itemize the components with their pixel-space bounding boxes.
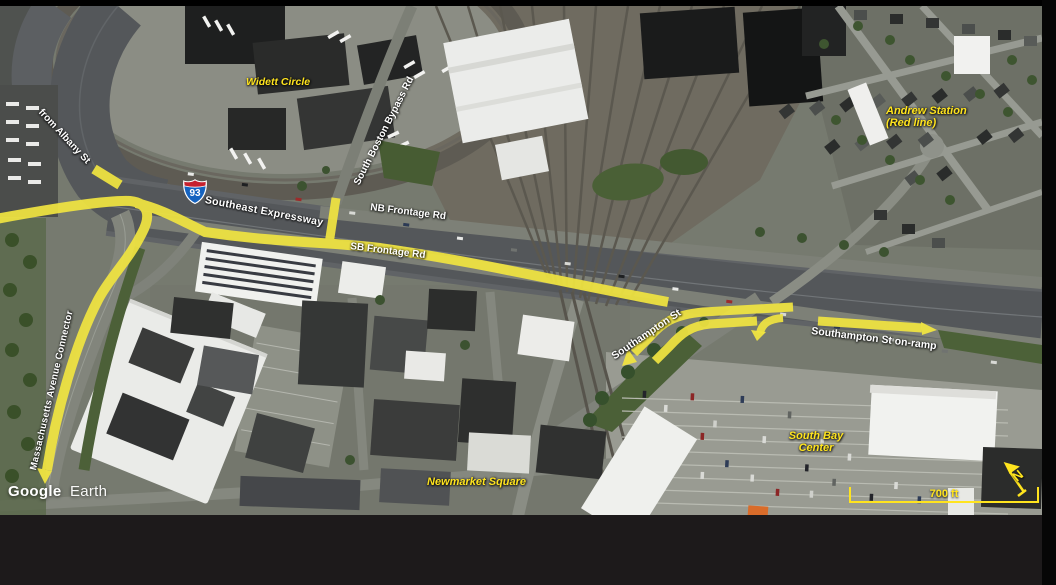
route-highlight-overlay: [0, 6, 1042, 516]
shield-route-number: 93: [183, 188, 207, 199]
i93-route-shield: 93: [183, 178, 207, 205]
route-from-albany: [94, 169, 120, 185]
letterbox-right: [1042, 0, 1056, 585]
google-earth-logo: Google Earth: [8, 483, 107, 500]
route-hook: [760, 318, 783, 333]
arrow-on-ramp: [921, 322, 937, 335]
north-indicator: N: [998, 454, 1042, 504]
logo-brand: Google: [8, 483, 61, 500]
letterbox-top: [0, 0, 1056, 6]
letterbox-bottom: [0, 515, 1056, 585]
route-southampton-upper: [634, 307, 793, 353]
logo-product: Earth: [70, 483, 107, 500]
route-sb-frontage: [136, 203, 668, 302]
screenshot-root: from Albany St Widett Circle Southeast E…: [0, 0, 1056, 585]
route-mass-ave-connector: [0, 201, 147, 470]
route-on-ramp: [818, 321, 922, 328]
route-nb-sb-connector: [329, 198, 336, 244]
satellite-map[interactable]: from Albany St Widett Circle Southeast E…: [0, 6, 1042, 516]
route-southampton-lower: [655, 321, 757, 361]
